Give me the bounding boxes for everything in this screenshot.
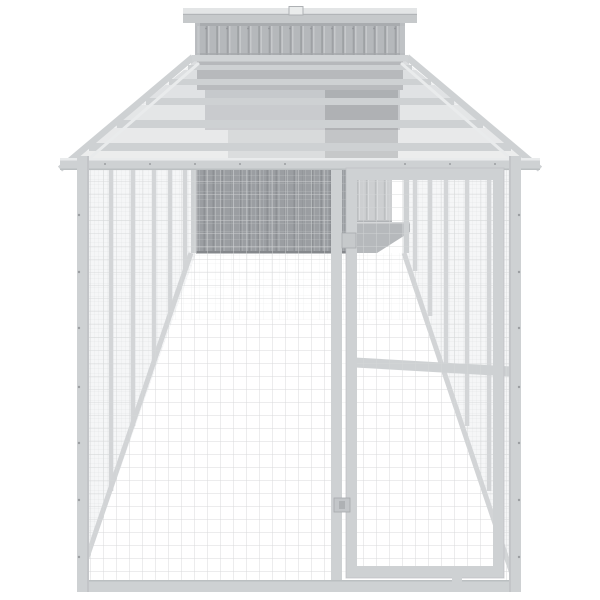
house-shadow-through-roof	[197, 57, 403, 90]
roof-beam	[188, 65, 412, 70]
door-latch	[334, 498, 350, 512]
door-hinge	[342, 233, 356, 248]
door-mesh	[357, 180, 493, 566]
kennel-render	[0, 0, 600, 600]
door-frame-bottom	[346, 566, 504, 578]
roof-under-shadow	[195, 23, 405, 26]
kennel-house	[183, 7, 417, 62]
roof-centre-clip	[289, 7, 303, 16]
door-stile-right	[493, 168, 504, 578]
door-bottom-connector	[452, 576, 462, 582]
roof-beam	[117, 120, 483, 128]
door-stile-left	[346, 168, 357, 578]
front-mesh-left-panel	[89, 170, 331, 580]
product-image: Light grey galvanised steel dog kennel: …	[0, 0, 600, 600]
house-roof	[183, 15, 417, 24]
front-mesh-side-strip	[505, 170, 510, 580]
house-base-rail	[192, 55, 408, 62]
front-frame	[60, 156, 540, 592]
roof-beam	[146, 98, 454, 105]
centre-post	[331, 170, 342, 580]
roof-beam	[169, 79, 431, 85]
door-frame-top	[346, 168, 504, 180]
roof-beam	[89, 143, 511, 151]
front-door	[334, 168, 504, 582]
